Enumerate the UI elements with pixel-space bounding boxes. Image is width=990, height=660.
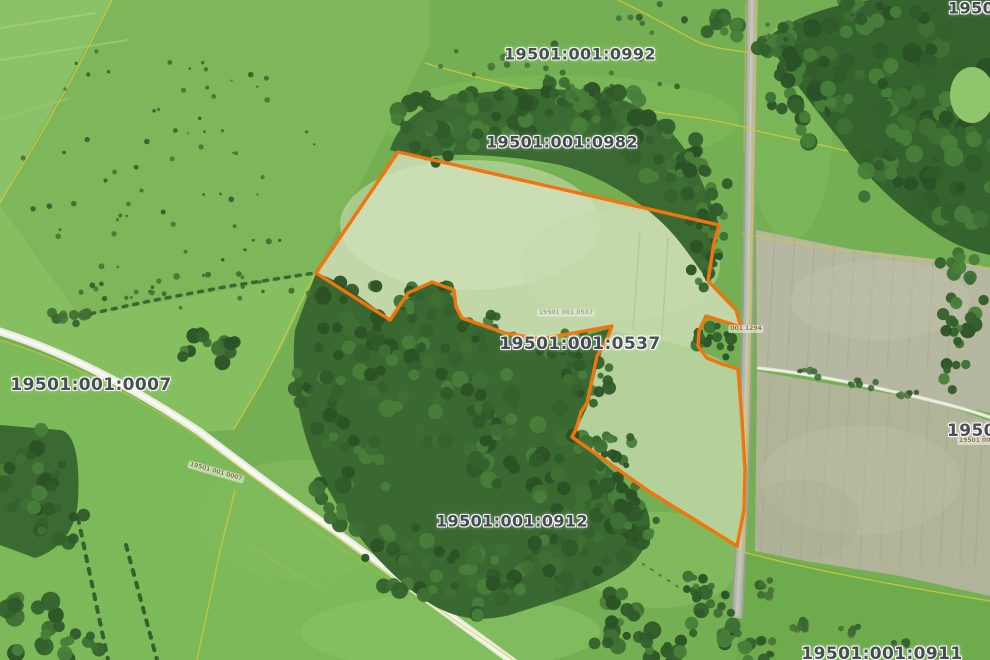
map-viewport[interactable]: 19501:001:099219501:001:098219501:001:05… xyxy=(0,0,990,660)
aerial-basemap[interactable] xyxy=(0,0,990,660)
plowed-field-layer xyxy=(740,230,990,596)
